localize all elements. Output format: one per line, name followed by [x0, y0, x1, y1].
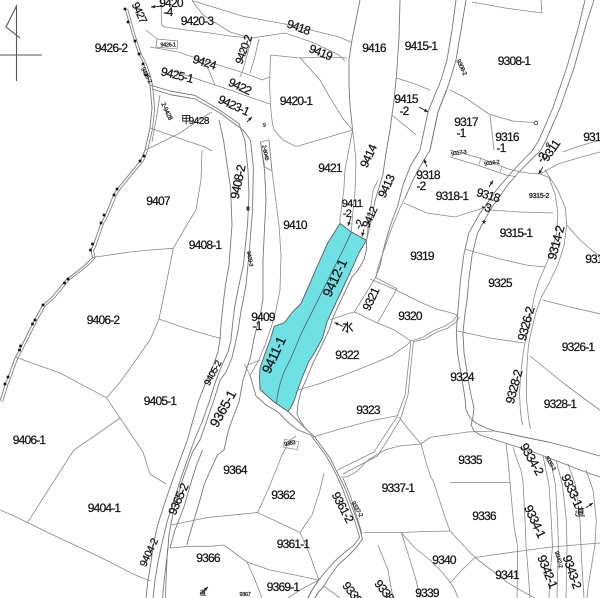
- svg-text:9362: 9362: [271, 488, 296, 502]
- svg-text:9364: 9364: [223, 463, 248, 477]
- svg-text:931: 931: [585, 252, 600, 266]
- svg-text:-2: -2: [416, 179, 426, 193]
- svg-text:9420-1: 9420-1: [280, 94, 314, 108]
- svg-text:9308-1: 9308-1: [498, 54, 532, 68]
- svg-text:9318-1: 9318-1: [436, 189, 470, 203]
- svg-text:9339: 9339: [415, 586, 440, 598]
- svg-text:9420-3: 9420-3: [181, 14, 215, 28]
- svg-text:9416: 9416: [362, 41, 387, 55]
- svg-text:-2: -2: [399, 104, 409, 118]
- svg-text:-4: -4: [163, 5, 173, 19]
- svg-text:9324: 9324: [450, 370, 475, 384]
- svg-text:9322: 9322: [335, 348, 360, 362]
- svg-text:9408-1: 9408-1: [189, 238, 223, 252]
- svg-text:9366: 9366: [196, 551, 221, 565]
- svg-text:9426-1: 9426-1: [160, 43, 176, 49]
- svg-text:9369-1: 9369-1: [267, 580, 301, 594]
- svg-text:9421: 9421: [318, 161, 343, 175]
- svg-text:9407: 9407: [146, 194, 171, 208]
- svg-text:9341: 9341: [495, 568, 520, 582]
- svg-text:-2: -2: [343, 208, 352, 220]
- svg-text:9415-1: 9415-1: [405, 39, 439, 53]
- svg-text:-1: -1: [496, 141, 506, 155]
- svg-text:9337-1: 9337-1: [382, 481, 416, 495]
- svg-text:9336: 9336: [472, 509, 497, 523]
- svg-text:9367: 9367: [239, 592, 250, 598]
- svg-text:9320: 9320: [398, 309, 423, 323]
- svg-text:9325: 9325: [488, 276, 513, 290]
- svg-text:9405-1: 9405-1: [144, 394, 178, 408]
- svg-text:-1: -1: [456, 126, 466, 140]
- svg-text:9340: 9340: [432, 553, 457, 567]
- svg-text:9426-2: 9426-2: [95, 41, 129, 55]
- svg-text:9428: 9428: [189, 116, 210, 127]
- svg-text:9323: 9323: [356, 403, 381, 417]
- svg-text:9361-1: 9361-1: [277, 537, 311, 551]
- svg-text:9406-1: 9406-1: [13, 433, 47, 447]
- svg-text:9319: 9319: [410, 249, 435, 263]
- svg-text:931: 931: [583, 130, 600, 144]
- svg-text:9404-1: 9404-1: [88, 501, 122, 515]
- svg-text:9315-1: 9315-1: [500, 226, 534, 240]
- svg-text:9326-1: 9326-1: [562, 340, 596, 354]
- svg-text:*: *: [482, 219, 486, 230]
- svg-text:9406-2: 9406-2: [87, 313, 121, 327]
- svg-text:-1: -1: [252, 319, 262, 333]
- svg-text:9335: 9335: [458, 453, 483, 467]
- svg-text:9410: 9410: [283, 218, 308, 232]
- svg-text:9315-2: 9315-2: [529, 193, 549, 200]
- svg-text:9328-1: 9328-1: [544, 397, 578, 411]
